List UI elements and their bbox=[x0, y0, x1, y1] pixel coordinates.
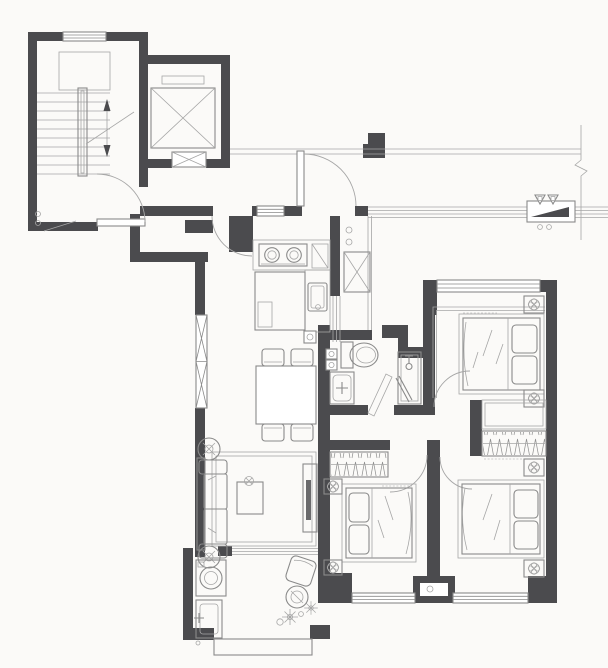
stair-direction-line bbox=[86, 112, 134, 144]
potted-plants bbox=[277, 601, 318, 625]
kitchen-sink bbox=[308, 283, 327, 311]
stair-landing bbox=[59, 52, 110, 90]
bedroom1-door-arc bbox=[434, 371, 470, 407]
dining-west-window bbox=[196, 315, 207, 408]
bedroom-1 bbox=[433, 296, 546, 429]
nightstand-lamp bbox=[524, 390, 544, 407]
shower bbox=[396, 352, 421, 404]
bedroom3-wardrobe bbox=[482, 431, 546, 459]
floor-plan-page bbox=[0, 0, 608, 668]
bay-grille bbox=[482, 400, 546, 429]
tv-cabinet bbox=[303, 464, 317, 532]
gas-stove bbox=[259, 244, 307, 266]
bedroom1-bed bbox=[459, 313, 544, 394]
pillow bbox=[349, 525, 369, 554]
washing-machine bbox=[196, 560, 226, 596]
laundry-sink bbox=[194, 600, 222, 645]
dining-chair bbox=[291, 349, 313, 366]
pillow bbox=[512, 356, 537, 384]
dining-chair bbox=[262, 349, 284, 366]
bedroom-3 bbox=[440, 431, 546, 577]
gas-pipe bbox=[346, 227, 352, 233]
kitchen-counter-right bbox=[305, 270, 330, 332]
boundary-break bbox=[575, 125, 587, 240]
pillow bbox=[514, 521, 538, 549]
area-rug bbox=[212, 452, 316, 546]
elevator-counterweight bbox=[162, 76, 204, 84]
stair-handrail bbox=[78, 88, 87, 176]
pillow bbox=[512, 325, 537, 353]
tv-screen bbox=[306, 480, 311, 520]
coffee-table bbox=[237, 477, 263, 515]
bedroom1-north-window bbox=[437, 280, 540, 292]
floor-plan bbox=[0, 0, 608, 668]
bedroom2-south-window bbox=[352, 593, 415, 603]
bedroom2-wardrobe bbox=[330, 452, 388, 477]
kitchen bbox=[253, 227, 370, 343]
pillow bbox=[349, 493, 369, 522]
stair-direction-arrows bbox=[86, 99, 134, 157]
elevator bbox=[151, 76, 215, 167]
floor-drain-box bbox=[304, 331, 316, 343]
stair-window bbox=[63, 32, 106, 41]
duct-shaft bbox=[344, 252, 370, 292]
bedroom2-door-arc bbox=[390, 455, 427, 492]
corridor bbox=[230, 125, 608, 240]
corridor-north-line bbox=[230, 149, 581, 154]
balcony-railing bbox=[214, 639, 312, 655]
pillow bbox=[514, 490, 538, 518]
living-room bbox=[197, 438, 318, 568]
meter-box bbox=[527, 195, 575, 229]
bathroom-door-threshold bbox=[368, 374, 392, 416]
nightstand-lamp bbox=[524, 459, 544, 476]
dining-area bbox=[256, 349, 316, 441]
kitchen-north-window bbox=[257, 206, 284, 216]
elevator-cab bbox=[151, 88, 215, 148]
bedroom-2 bbox=[324, 452, 427, 575]
lounge-chair bbox=[285, 555, 318, 588]
dining-chair bbox=[262, 424, 284, 441]
dining-chair bbox=[291, 424, 313, 441]
kitchen-island bbox=[255, 272, 305, 330]
gas-pipe bbox=[346, 239, 352, 245]
stairwell bbox=[36, 52, 146, 231]
south-pipe-pillar bbox=[413, 576, 455, 603]
entry-door bbox=[297, 151, 356, 206]
stair-treads bbox=[37, 93, 110, 174]
balcony-table bbox=[286, 586, 308, 608]
washbasin bbox=[330, 372, 354, 404]
nightstand-lamp bbox=[524, 560, 544, 577]
toilet bbox=[326, 342, 378, 370]
balcony-sliding-track bbox=[232, 549, 318, 555]
dining-table bbox=[256, 366, 316, 424]
bedroom3-south-window bbox=[453, 593, 528, 603]
elevator-door bbox=[172, 152, 206, 167]
bedroom3-bed bbox=[458, 480, 544, 558]
bedroom2-bed bbox=[342, 484, 416, 562]
